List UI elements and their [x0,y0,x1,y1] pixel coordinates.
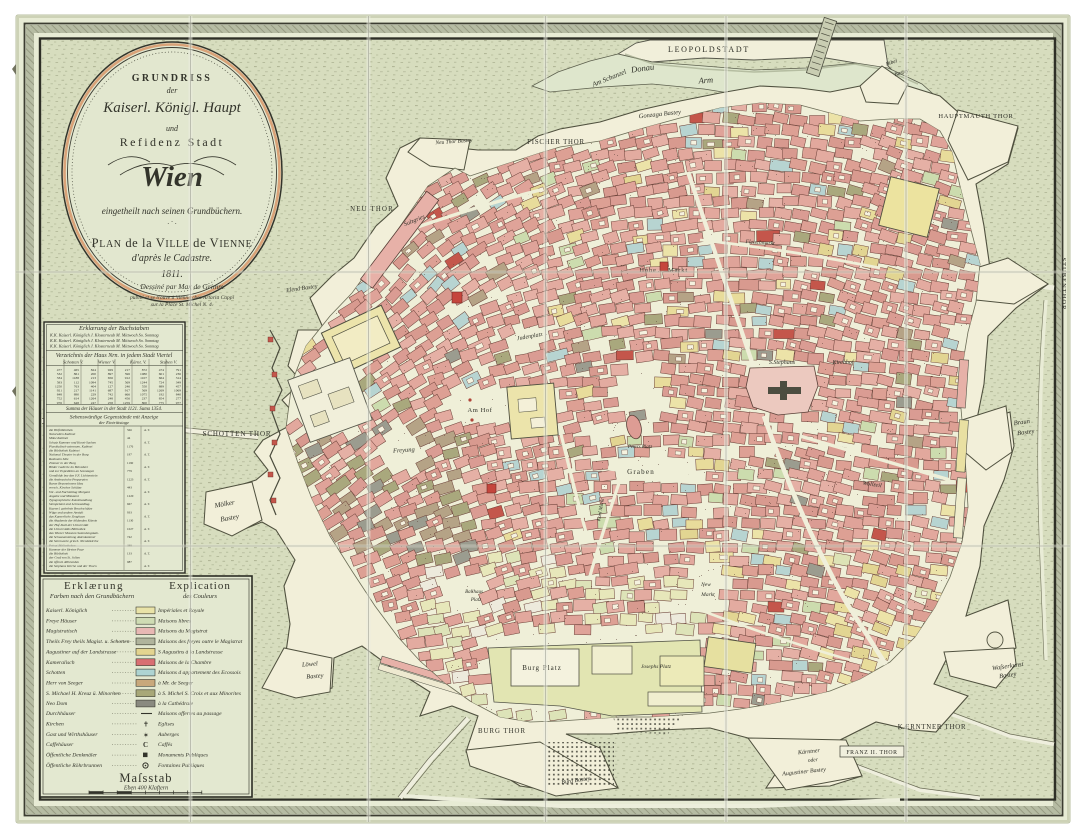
svg-text:Kaiserl. Königl. Haupt: Kaiserl. Königl. Haupt [102,100,241,116]
svg-text:K.K. Kaiserl. Königlich J. K: K.K. Kaiserl. Königlich J. Klosterneub M… [49,344,159,349]
svg-text:Gast und Wirthshäuser: Gast und Wirthshäuser [46,732,98,738]
svg-text:648: 648 [74,401,80,405]
svg-text:A. T.: A. T. [143,477,150,481]
svg-text:Stuben V.: Stuben V. [160,360,178,365]
svg-text:der Eintrittstage: der Eintrittstage [99,420,129,425]
svg-text:K.K. Kaiserl. Königlich J. K: K.K. Kaiserl. Königlich J. Klosterneub M… [49,338,159,343]
svg-text:1130: 1130 [127,519,134,523]
svg-text:Erklærung der Buchstaben: Erklærung der Buchstaben [78,325,149,332]
svg-text:Dessiné par Max de Grimm: Dessiné par Max de Grimm [139,282,224,291]
svg-text:1220: 1220 [127,494,134,498]
svg-text:des Couleurs: des Couleurs [183,593,218,600]
svg-text:Freye Häuser: Freye Häuser [45,618,78,624]
svg-text:Kameralisch: Kameralisch [45,660,75,666]
svg-text:Wiener V.: Wiener V. [98,360,116,365]
svg-text:C: C [143,741,148,749]
svg-text:Caffehäuser: Caffehäuser [46,741,74,748]
svg-text:Eben 400 Klaftern: Eben 400 Klaftern [123,785,168,792]
svg-text:Kaiserl. Königlich: Kaiserl. Königlich [45,608,88,614]
svg-text:Maisons d appartement des Ecos: Maisons d appartement des Ecossois [157,670,241,676]
svg-text:197: 197 [127,453,132,457]
svg-text:443: 443 [127,486,132,490]
svg-text:Farben nach den Grundbüchern: Farben nach den Grundbüchern [49,593,134,600]
svg-text:779: 779 [127,469,132,473]
svg-text:A. T.: A. T. [143,465,150,469]
svg-text:Summa der Häuser in der Stadt: Summa der Häuser in der Stadt 1121. Suma… [66,407,162,412]
svg-text:A. T.: A. T. [143,490,150,494]
svg-text:Markt: Markt [700,592,715,598]
svg-text:Fontaines Publiques: Fontaines Publiques [157,763,204,769]
svg-text:eingetheilt nach seinen Grundb: eingetheilt nach seinen Grundbüchern. [102,206,242,216]
svg-text:Arm: Arm [697,75,713,86]
svg-text:A. T.: A. T. [143,564,150,568]
svg-text:und: und [166,124,179,133]
svg-text:Kärnt. V.: Kärnt. V. [129,360,147,365]
svg-text:Maisons de la Chambre: Maisons de la Chambre [157,660,212,666]
svg-text:Öffentliche Röhrbrunnen: Öffentliche Röhrbrunnen [46,761,102,769]
svg-text:133: 133 [127,552,132,556]
svg-text:die Stephans Kirche und der Th: die Stephans Kirche und der Thurn [49,564,97,568]
svg-text:S. Michael H. Kreuz ü. Minorit: S. Michael H. Kreuz ü. Minoriten [46,691,121,697]
svg-text:New: New [700,582,711,588]
svg-text:K.K. Kaiserl. Königlich J. K: K.K. Kaiserl. Königlich J. Klosterneub M… [49,333,159,338]
svg-text:GRUNDRISS: GRUNDRISS [132,73,213,84]
svg-text:✝: ✝ [143,720,149,728]
svg-text:933: 933 [127,510,132,514]
svg-text:1223: 1223 [127,477,134,481]
svg-text:A. T.: A. T. [143,552,150,556]
svg-text:667: 667 [127,502,132,506]
svg-text:Caffés: Caffés [158,741,172,748]
svg-text:sur la Place St. Michel N. 4.: sur la Place St. Michel N. 4. [151,301,213,308]
svg-text:FISCHER THOR: FISCHER THOR [527,139,585,146]
svg-text:258: 258 [108,401,114,405]
svg-text:247: 247 [91,401,97,405]
svg-text:1259: 1259 [123,401,130,405]
svg-text:Maſsstab: Maſsstab [119,771,172,785]
svg-text:Augustiner auf der Landstrasse: Augustiner auf der Landstrasse [45,648,117,655]
svg-text:800: 800 [142,401,148,405]
svg-text:à S. Michel S. Croix et aux Mi: à S. Michel S. Croix et aux Minorites [158,691,241,697]
svg-text:Am Hof: Am Hof [467,407,492,414]
svg-text:566: 566 [127,428,132,432]
svg-text:742: 742 [127,535,132,539]
svg-text:SCHOTTEN THOR: SCHOTTEN THOR [203,430,272,438]
svg-text:1176: 1176 [127,445,134,449]
svg-text:775: 775 [159,401,165,405]
svg-text:LEOPOLDSTADT: LEOPOLDSTADT [668,45,750,54]
svg-text:Herr von Seeger: Herr von Seeger [45,681,84,687]
svg-text:Schotten: Schotten [46,670,65,676]
svg-text:Kirchhof: Kirchhof [831,359,854,366]
svg-text:PLAN de la VILLE de VIENNE: PLAN de la VILLE de VIENNE [92,236,253,250]
svg-text:d'après le Cadastre.: d'après le Cadastre. [132,253,212,264]
svg-text:BURG THOR: BURG THOR [478,728,526,735]
svg-text:44: 44 [127,436,131,440]
svg-text:FRANZ II. THOR: FRANZ II. THOR [846,750,897,756]
svg-text:Öffentliche Denkmäler: Öffentliche Denkmäler [46,751,98,759]
svg-text:A. T.: A. T. [143,502,150,506]
svg-text:Maisons libres: Maisons libres [157,618,191,624]
svg-text:publié et se trouve à Vienne c: publié et se trouve à Vienne chez Artari… [129,295,235,301]
svg-text:Theils Frey theils Magist. u.: Theils Frey theils Magist. u. Schotten [46,639,130,645]
svg-text:Burg Platz: Burg Platz [522,664,562,672]
svg-text:Josephs Platz: Josephs Platz [641,664,672,670]
svg-text:Verzeichnis der Haus Nrn. in j: Verzeichnis der Haus Nrn. in jedem Stadt… [56,353,173,359]
svg-text:A. T.: A. T. [143,539,150,543]
svg-text:Neo Dom: Neo Dom [45,701,67,707]
svg-text:Explication: Explication [169,580,231,592]
svg-text:STUBENTHOR: STUBENTHOR [1060,258,1067,311]
svg-text:Durchhäuser: Durchhäuser [45,711,76,717]
svg-text:A. T.: A. T. [143,428,150,432]
svg-text:A. T.: A. T. [143,440,150,444]
svg-text:Impériales et Royale: Impériales et Royale [157,608,205,614]
svg-text:987: 987 [127,560,132,564]
svg-text:à la Cathédrale: à la Cathédrale [158,701,194,707]
svg-text:NEU THOR: NEU THOR [350,206,394,213]
svg-text:1190: 1190 [127,461,134,465]
svg-text:A. T.: A. T. [143,527,150,531]
svg-text:Löwel: Löwel [301,660,319,668]
svg-text:✶: ✶ [143,731,149,739]
svg-text:der: der [167,86,179,95]
svg-text:Erklærung: Erklærung [64,580,124,592]
svg-text:Maisons du Magistrat: Maisons du Magistrat [157,629,208,635]
svg-text:Auberges: Auberges [157,732,179,738]
svg-text:Monuments Publiques: Monuments Publiques [157,753,208,759]
svg-text:Ballhaus: Ballhaus [465,590,483,595]
svg-text:Magistratisch: Magistratisch [45,629,77,635]
svg-text:S.Stephans: S.Stephans [769,360,796,366]
svg-text:. · .: . · . [167,218,177,226]
svg-text:Kirchen: Kirchen [45,721,64,727]
svg-text:Eglises: Eglises [157,721,174,727]
svg-text:Graben: Graben [627,468,655,476]
svg-text:A. T.: A. T. [143,453,150,457]
svg-text:Peters Platz: Peters Platz [627,445,652,450]
svg-text:976: 976 [57,401,63,405]
svg-text:Maisons des freyes outre le Ma: Maisons des freyes outre le Magistrat [157,638,243,645]
svg-text:A. T.: A. T. [143,515,150,519]
svg-text:Refidenz Stadt: Refidenz Stadt [120,135,225,149]
svg-text:977: 977 [176,401,182,405]
svg-text:oder: oder [808,757,820,764]
svg-text:HAUPTMAUTH THOR: HAUPTMAUTH THOR [938,113,1013,120]
svg-text:Platz: Platz [470,598,481,603]
svg-text:1027: 1027 [127,527,134,531]
